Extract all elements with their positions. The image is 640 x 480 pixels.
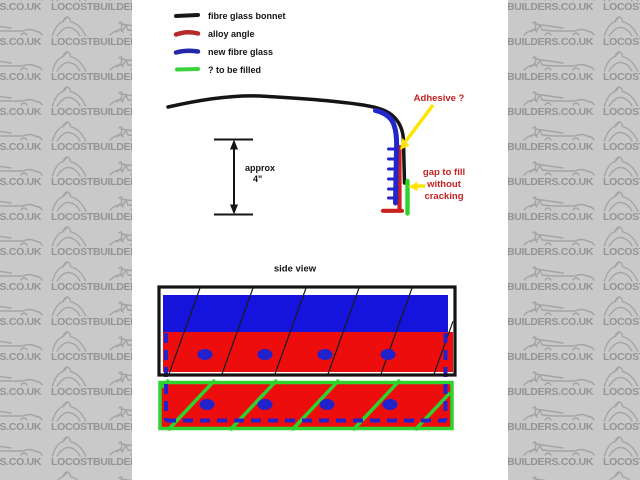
watermark-text: LOCOSTBUILDERS.CO.UK xyxy=(603,316,640,328)
dimension-arrowhead-up xyxy=(230,140,238,150)
car-sketch-icon xyxy=(0,335,47,352)
adhesive-arrow-line xyxy=(406,105,433,141)
car-sketch-icon xyxy=(603,471,640,480)
watermark-tile: LOCOSTBUILDERS.CO.UK xyxy=(603,366,640,401)
car-sketch-icon xyxy=(603,16,640,37)
car-sketch-icon xyxy=(51,16,88,37)
car-sketch-icon xyxy=(523,405,599,422)
watermark-tile: LOCOSTBUILDERS.CO.UK xyxy=(603,226,640,261)
watermark-tile: LOCOSTBUILDERS.CO.UK xyxy=(603,261,640,296)
forum-image-page: LOCOSTBUILDERS.CO.UKLOCOSTBUILDERS.CO.UK… xyxy=(0,0,640,480)
watermark-tile: LOCOSTBUILDERS.CO.UK xyxy=(603,0,640,16)
car-sketch-icon xyxy=(0,20,47,37)
adhesive-label: Adhesive ? xyxy=(414,93,465,104)
watermark-text: LOCOSTBUILDERS.CO.UK xyxy=(603,176,640,188)
watermark-text: LOCOSTBUILDERS.CO.UK xyxy=(0,71,41,83)
car-sketch-icon xyxy=(0,475,47,480)
car-sketch-icon xyxy=(51,191,88,212)
watermark-text: LOCOSTBUILDERS.CO.UK xyxy=(0,281,41,293)
adhesive-annotation: Adhesive ? xyxy=(400,93,465,150)
side-view-label: side view xyxy=(274,264,317,275)
watermark-tile: LOCOSTBUILDERS.CO.UK xyxy=(0,471,51,480)
watermark-tile: LOCOSTBUILDERS.CO.UK xyxy=(603,436,640,471)
gap-label-1: gap to fill xyxy=(423,167,465,178)
car-sketch-icon xyxy=(0,405,47,422)
watermark-text: LOCOSTBUILDERS.CO.UK xyxy=(603,36,640,48)
legend-swatch-alloy xyxy=(176,32,198,34)
car-sketch-icon xyxy=(523,20,599,37)
watermark-tile: LOCOSTBUILDERS.CO.UK xyxy=(603,191,640,226)
side-view-blue-layer xyxy=(163,295,448,332)
car-sketch-icon xyxy=(0,300,47,317)
watermark-text: LOCOSTBUILDERS.CO.UK xyxy=(603,1,640,13)
car-sketch-icon xyxy=(603,191,640,212)
car-sketch-icon xyxy=(0,125,47,142)
car-sketch-icon xyxy=(603,366,640,387)
watermark-tile: LOCOSTBUILDERS.CO.UK xyxy=(603,156,640,191)
car-sketch-icon xyxy=(51,51,88,72)
car-sketch-icon xyxy=(51,471,88,480)
car-sketch-icon xyxy=(603,296,640,317)
car-sketch-icon xyxy=(51,226,88,247)
rivet-dot xyxy=(383,399,398,410)
gap-label-3: cracking xyxy=(424,191,463,202)
watermark-tile: LOCOSTBUILDERS.CO.UK xyxy=(603,16,640,51)
legend-label-alloy: alloy angle xyxy=(208,29,255,39)
watermark-text: LOCOSTBUILDERS.CO.UK xyxy=(0,211,41,223)
rivet-dot xyxy=(320,399,335,410)
watermark-tile: LOCOSTBUILDERS.CO.UK xyxy=(0,401,51,436)
watermark-text: LOCOSTBUILDERS.CO.UK xyxy=(603,386,640,398)
car-sketch-icon xyxy=(523,335,599,352)
watermark-tile: LOCOSTBUILDERS.CO.UK xyxy=(603,86,640,121)
car-sketch-icon xyxy=(603,156,640,177)
legend-label-filled: ? to be filled xyxy=(208,65,261,75)
car-sketch-icon xyxy=(523,230,599,247)
car-sketch-icon xyxy=(51,436,88,457)
car-sketch-icon xyxy=(603,226,640,247)
bonnet-curve-line xyxy=(168,96,405,183)
watermark-text: LOCOSTBUILDERS.CO.UK xyxy=(603,211,640,223)
rivet-dot xyxy=(200,399,215,410)
watermark-tile: LOCOSTBUILDERS.CO.UK xyxy=(0,366,51,401)
watermark-tile: LOCOSTBUILDERS.CO.UK xyxy=(603,331,640,366)
watermark-text: LOCOSTBUILDERS.CO.UK xyxy=(0,36,41,48)
watermark-text: LOCOSTBUILDERS.CO.UK xyxy=(603,421,640,433)
watermark-tile: LOCOSTBUILDERS.CO.UK xyxy=(603,121,640,156)
legend-swatch-bonnet xyxy=(176,15,198,16)
watermark-text: LOCOSTBUILDERS.CO.UK xyxy=(0,351,41,363)
car-sketch-icon xyxy=(51,261,88,282)
diagram-panel: fibre glass bonnet alloy angle new fibre… xyxy=(132,0,508,480)
dimension-4in: approx 4" xyxy=(214,140,275,215)
watermark-text: LOCOSTBUILDERS.CO.UK xyxy=(0,386,41,398)
car-sketch-icon xyxy=(523,475,599,480)
watermark-tile: LOCOSTBUILDERS.CO.UK xyxy=(0,296,51,331)
car-sketch-icon xyxy=(523,90,599,107)
watermark-text: LOCOSTBUILDERS.CO.UK xyxy=(0,421,41,433)
car-sketch-icon xyxy=(523,55,599,72)
car-sketch-icon xyxy=(523,125,599,142)
car-sketch-icon xyxy=(0,160,47,177)
car-sketch-icon xyxy=(603,261,640,282)
rivet-dot xyxy=(198,349,213,360)
car-sketch-icon xyxy=(603,86,640,107)
car-sketch-icon xyxy=(523,160,599,177)
watermark-tile: LOCOSTBUILDERS.CO.UK xyxy=(0,121,51,156)
car-sketch-icon xyxy=(603,51,640,72)
car-sketch-icon xyxy=(51,331,88,352)
watermark-text: LOCOSTBUILDERS.CO.UK xyxy=(0,141,41,153)
bonnet-diagram-svg: fibre glass bonnet alloy angle new fibre… xyxy=(132,0,508,480)
rivet-dot xyxy=(258,349,273,360)
side-view-drawing xyxy=(159,287,455,430)
watermark-text: LOCOSTBUILDERS.CO.UK xyxy=(0,246,41,258)
watermark-text: LOCOSTBUILDERS.CO.UK xyxy=(0,1,41,13)
watermark-tile: LOCOSTBUILDERS.CO.UK xyxy=(0,156,51,191)
rivet-dot xyxy=(318,349,333,360)
watermark-text: LOCOSTBUILDERS.CO.UK xyxy=(0,176,41,188)
car-sketch-icon xyxy=(0,440,47,457)
watermark-tile: LOCOSTBUILDERS.CO.UK xyxy=(603,401,640,436)
watermark-text: LOCOSTBUILDERS.CO.UK xyxy=(603,71,640,83)
car-sketch-icon xyxy=(0,90,47,107)
car-sketch-icon xyxy=(51,366,88,387)
watermark-tile: LOCOSTBUILDERS.CO.UK xyxy=(603,51,640,86)
car-sketch-icon xyxy=(523,300,599,317)
car-sketch-icon xyxy=(51,296,88,317)
watermark-text: LOCOSTBUILDERS.CO.UK xyxy=(0,316,41,328)
watermark-tile: LOCOSTBUILDERS.CO.UK xyxy=(0,51,51,86)
watermark-text: LOCOSTBUILDERS.CO.UK xyxy=(0,456,41,468)
watermark-tile: LOCOSTBUILDERS.CO.UK xyxy=(0,436,51,471)
rivet-dot xyxy=(381,349,396,360)
watermark-tile: LOCOSTBUILDERS.CO.UK xyxy=(0,0,51,16)
watermark-text: LOCOSTBUILDERS.CO.UK xyxy=(0,106,41,118)
car-sketch-icon xyxy=(0,230,47,247)
rivet-dot xyxy=(258,399,273,410)
dimension-text-4in: 4" xyxy=(253,174,262,184)
legend-swatch-filled xyxy=(177,69,198,70)
watermark-tile: LOCOSTBUILDERS.CO.UK xyxy=(0,16,51,51)
car-sketch-icon xyxy=(51,156,88,177)
watermark-text: LOCOSTBUILDERS.CO.UK xyxy=(603,141,640,153)
legend-label-newfibre: new fibre glass xyxy=(208,47,273,57)
car-sketch-icon xyxy=(0,55,47,72)
watermark-text: LOCOSTBUILDERS.CO.UK xyxy=(603,106,640,118)
legend: fibre glass bonnet alloy angle new fibre… xyxy=(176,11,286,75)
car-sketch-icon xyxy=(603,121,640,142)
legend-label-bonnet: fibre glass bonnet xyxy=(208,11,286,21)
watermark-text: LOCOSTBUILDERS.CO.UK xyxy=(603,456,640,468)
car-sketch-icon xyxy=(0,370,47,387)
gap-label-2: without xyxy=(426,179,462,190)
watermark-tile: LOCOSTBUILDERS.CO.UK xyxy=(0,191,51,226)
watermark-tile: LOCOSTBUILDERS.CO.UK xyxy=(0,261,51,296)
car-sketch-icon xyxy=(603,331,640,352)
car-sketch-icon xyxy=(603,436,640,457)
watermark-tile: LOCOSTBUILDERS.CO.UK xyxy=(0,331,51,366)
car-sketch-icon xyxy=(51,86,88,107)
car-sketch-icon xyxy=(523,265,599,282)
watermark-text: LOCOSTBUILDERS.CO.UK xyxy=(603,351,640,363)
watermark-tile: LOCOSTBUILDERS.CO.UK xyxy=(603,296,640,331)
car-sketch-icon xyxy=(523,195,599,212)
car-sketch-icon xyxy=(51,401,88,422)
car-sketch-icon xyxy=(523,370,599,387)
watermark-tile: LOCOSTBUILDERS.CO.UK xyxy=(0,226,51,261)
car-sketch-icon xyxy=(0,265,47,282)
car-sketch-icon xyxy=(0,195,47,212)
dimension-arrowhead-down xyxy=(230,205,238,215)
gap-annotation: gap to fill without cracking xyxy=(408,167,465,202)
dimension-text-approx: approx xyxy=(245,163,275,173)
watermark-text: LOCOSTBUILDERS.CO.UK xyxy=(603,281,640,293)
cross-section xyxy=(168,96,408,214)
watermark-tile: LOCOSTBUILDERS.CO.UK xyxy=(0,86,51,121)
car-sketch-icon xyxy=(523,440,599,457)
watermark-tile: LOCOSTBUILDERS.CO.UK xyxy=(603,471,640,480)
legend-swatch-newfibre xyxy=(176,51,198,53)
car-sketch-icon xyxy=(51,121,88,142)
car-sketch-icon xyxy=(603,401,640,422)
watermark-text: LOCOSTBUILDERS.CO.UK xyxy=(603,246,640,258)
